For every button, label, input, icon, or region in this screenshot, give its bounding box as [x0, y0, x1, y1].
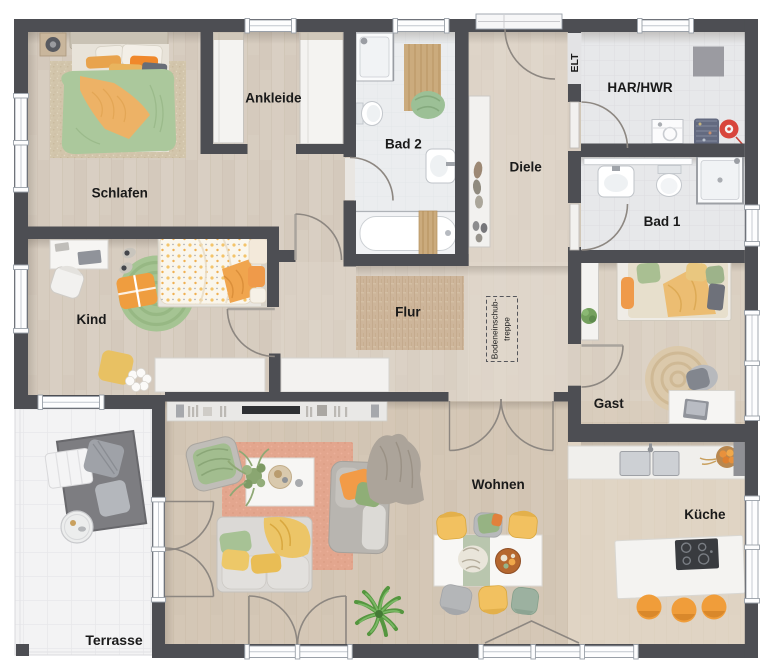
svg-text:Bodeneinschub-: Bodeneinschub-: [490, 299, 500, 360]
svg-text:Ankleide: Ankleide: [245, 91, 302, 106]
svg-text:Kind: Kind: [77, 312, 107, 327]
svg-text:Bad 2: Bad 2: [385, 137, 422, 152]
svg-text:Flur: Flur: [395, 305, 421, 320]
svg-text:ELT: ELT: [569, 53, 581, 73]
svg-text:treppe: treppe: [502, 317, 512, 341]
svg-text:Diele: Diele: [510, 160, 543, 175]
svg-text:Bad 1: Bad 1: [644, 214, 681, 229]
svg-text:Terrasse: Terrasse: [85, 632, 143, 648]
svg-text:Wohnen: Wohnen: [472, 477, 525, 492]
svg-text:Küche: Küche: [684, 507, 726, 522]
svg-text:Gast: Gast: [594, 396, 625, 411]
svg-text:HAR/HWR: HAR/HWR: [607, 80, 672, 95]
svg-text:Schlafen: Schlafen: [92, 186, 148, 201]
